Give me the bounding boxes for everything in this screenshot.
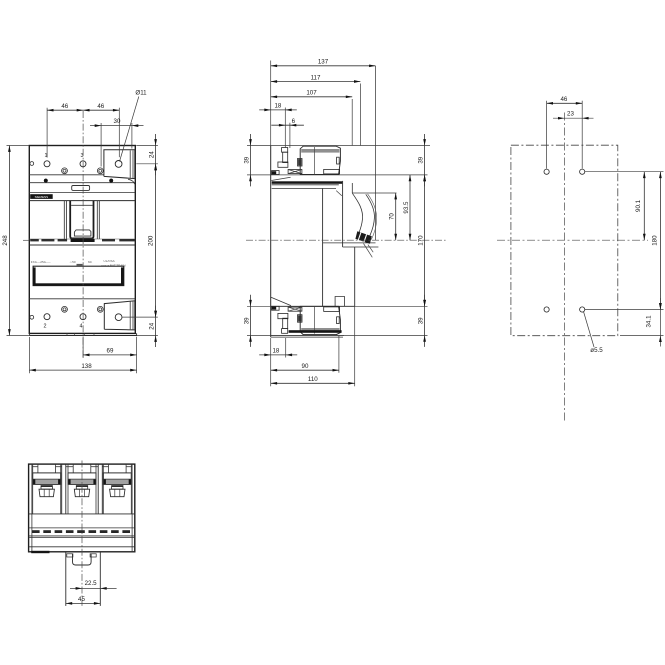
- svg-text:UL/CSA: UL/CSA: [104, 259, 116, 263]
- svg-text:170: 170: [417, 235, 424, 246]
- svg-text:4: 4: [80, 324, 83, 330]
- svg-text:23: 23: [567, 111, 574, 118]
- svg-text:39: 39: [243, 317, 250, 324]
- svg-text:70: 70: [389, 213, 396, 220]
- svg-text:45: 45: [78, 596, 85, 603]
- svg-text:ø5.5: ø5.5: [590, 347, 603, 354]
- svg-text:18: 18: [272, 348, 279, 355]
- svg-text:46: 46: [560, 96, 567, 103]
- svg-text:39: 39: [243, 156, 250, 163]
- svg-text:60.: 60.: [88, 260, 92, 264]
- svg-text:39: 39: [417, 156, 424, 163]
- svg-text:138: 138: [81, 363, 92, 370]
- svg-text:248: 248: [2, 235, 9, 246]
- svg-text:110: 110: [308, 376, 318, 383]
- svg-text:30: 30: [114, 118, 121, 125]
- svg-text:Ø11: Ø11: [135, 90, 147, 97]
- svg-text:107: 107: [306, 90, 317, 97]
- svg-text:93.5: 93.5: [403, 201, 410, 214]
- svg-text:46: 46: [97, 103, 104, 110]
- svg-text:39: 39: [417, 317, 424, 324]
- svg-text:34.1: 34.1: [646, 315, 653, 328]
- svg-text:18: 18: [274, 103, 281, 110]
- svg-text:69: 69: [107, 348, 114, 355]
- svg-text:90: 90: [302, 363, 309, 370]
- svg-text:180: 180: [651, 235, 658, 246]
- svg-text:24: 24: [148, 322, 155, 329]
- svg-text:FXA––25A–—: FXA––25A–—: [31, 260, 52, 264]
- svg-text:137: 137: [318, 59, 329, 66]
- svg-text:6: 6: [292, 118, 296, 125]
- svg-text:117: 117: [311, 74, 321, 81]
- svg-text:∼50: ∼50: [70, 260, 76, 264]
- svg-text:90.1: 90.1: [635, 199, 642, 212]
- svg-text:200: 200: [148, 235, 155, 246]
- svg-text:2: 2: [44, 324, 47, 330]
- svg-text:24: 24: [148, 151, 155, 158]
- svg-text:46: 46: [61, 103, 68, 110]
- svg-text:use a BAT.TRAIN: use a BAT.TRAIN: [102, 264, 126, 268]
- svg-text:SIEMENS: SIEMENS: [35, 195, 49, 199]
- svg-text:22.5: 22.5: [85, 580, 98, 587]
